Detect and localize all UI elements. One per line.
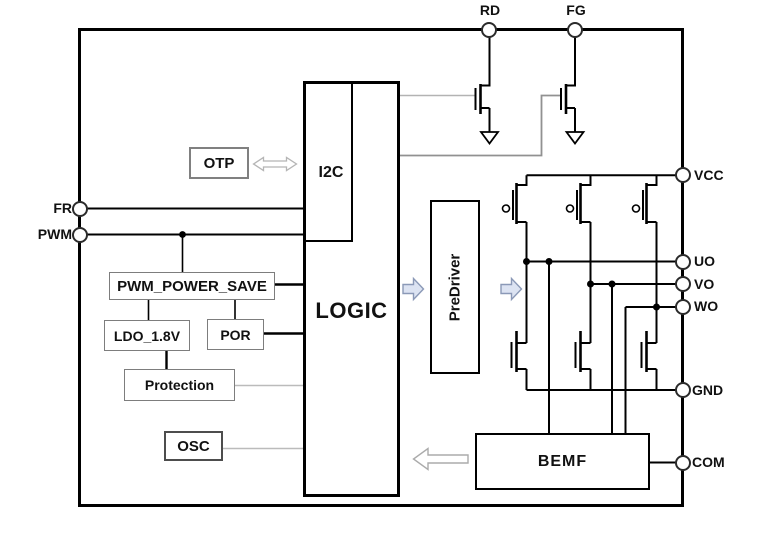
pin-fr-label: FR: [28, 200, 72, 217]
pin-uo-label: UO: [694, 253, 715, 270]
block-predriver: PreDriver: [430, 200, 480, 374]
pin-vcc: [675, 167, 691, 183]
pin-vo: [675, 276, 691, 292]
block-bemf: BEMF: [475, 433, 650, 490]
pin-wo-label: WO: [694, 298, 718, 315]
block-bemf-label: BEMF: [538, 453, 587, 471]
block-protection: Protection: [124, 369, 235, 401]
block-logic-label: LOGIC: [306, 298, 397, 324]
block-osc-label: OSC: [177, 438, 210, 455]
pin-fg-label: FG: [552, 2, 600, 19]
block-protection-label: Protection: [145, 377, 214, 393]
pin-vo-label: VO: [694, 276, 714, 293]
block-ldo: LDO_1.8V: [104, 320, 190, 351]
pin-com: [675, 455, 691, 471]
pin-uo: [675, 254, 691, 270]
block-por: POR: [207, 319, 264, 350]
pin-com-label: COM: [692, 454, 725, 471]
pin-wo: [675, 299, 691, 315]
block-ldo-label: LDO_1.8V: [114, 328, 180, 344]
pin-vcc-label: VCC: [694, 167, 724, 184]
pin-rd: [481, 22, 497, 38]
block-pwm-power-save: PWM_POWER_SAVE: [109, 272, 275, 300]
block-diagram-canvas: LOGIC I2C OTP PWM_POWER_SAVE LDO_1.8V PO…: [0, 0, 771, 538]
block-otp-label: OTP: [204, 155, 235, 172]
pin-pwm-label: PWM: [28, 226, 72, 243]
pin-pwm: [72, 227, 88, 243]
block-pwm-power-save-label: PWM_POWER_SAVE: [117, 278, 267, 295]
pin-fr: [72, 201, 88, 217]
pin-gnd-label: GND: [692, 382, 723, 399]
pin-gnd: [675, 382, 691, 398]
block-predriver-label: PreDriver: [447, 253, 464, 321]
block-otp: OTP: [189, 147, 249, 179]
block-osc: OSC: [164, 431, 223, 461]
block-i2c: [303, 81, 353, 242]
pin-rd-label: RD: [466, 2, 514, 19]
pin-fg: [567, 22, 583, 38]
block-por-label: POR: [220, 327, 250, 343]
